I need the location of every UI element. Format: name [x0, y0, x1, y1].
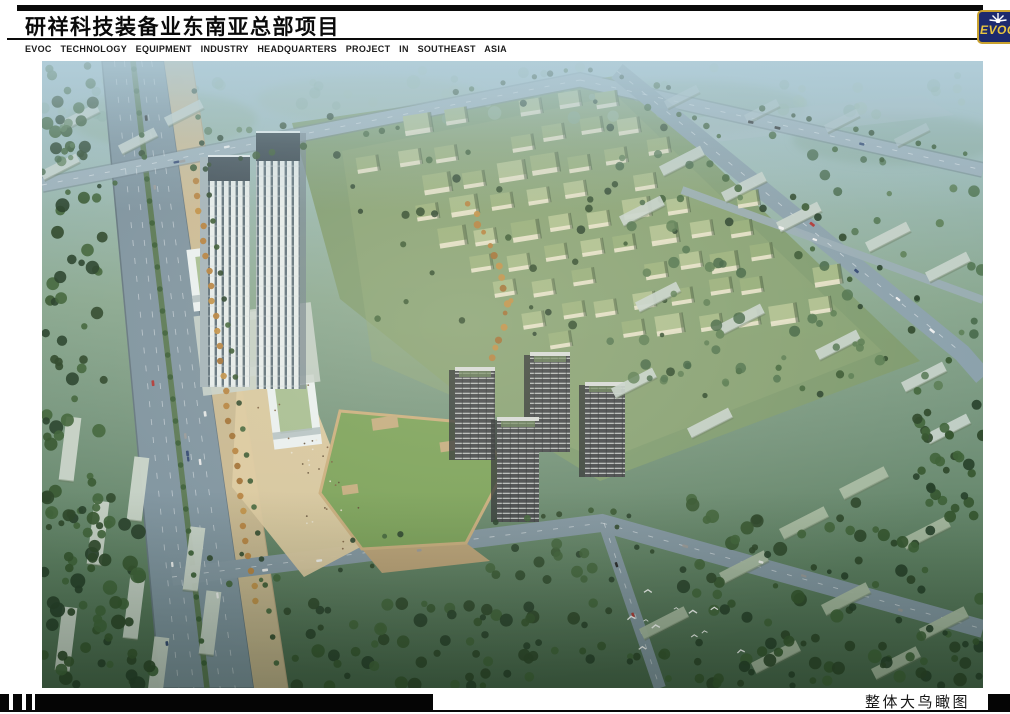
footer-black-bar	[35, 694, 433, 711]
barcode-bar	[13, 694, 22, 711]
aerial-rendering	[42, 61, 983, 688]
footer-black-square	[988, 694, 1010, 711]
logo-text: EVOC	[980, 23, 1010, 37]
vignette-overlay	[42, 491, 983, 688]
page-subtitle: EVOC TECHNOLOGY EQUIPMENT INDUSTRY HEADQ…	[25, 44, 507, 54]
page-title: 研祥科技装备业东南亚总部项目	[25, 11, 340, 41]
sunburst-icon	[988, 13, 1008, 23]
footer-rule	[0, 710, 1010, 712]
evoc-logo: EVOC	[977, 10, 1010, 44]
aerial-rendering-image	[42, 61, 983, 688]
header-rule-under-title	[7, 38, 1010, 40]
barcode-bar	[26, 694, 32, 711]
haze-overlay	[42, 61, 983, 211]
drawing-caption: 整体大鸟瞰图	[800, 691, 970, 712]
presentation-board: 研祥科技装备业东南亚总部项目 EVOC TECHNOLOGY EQUIPMENT…	[0, 0, 1010, 714]
barcode-bar	[0, 694, 9, 711]
